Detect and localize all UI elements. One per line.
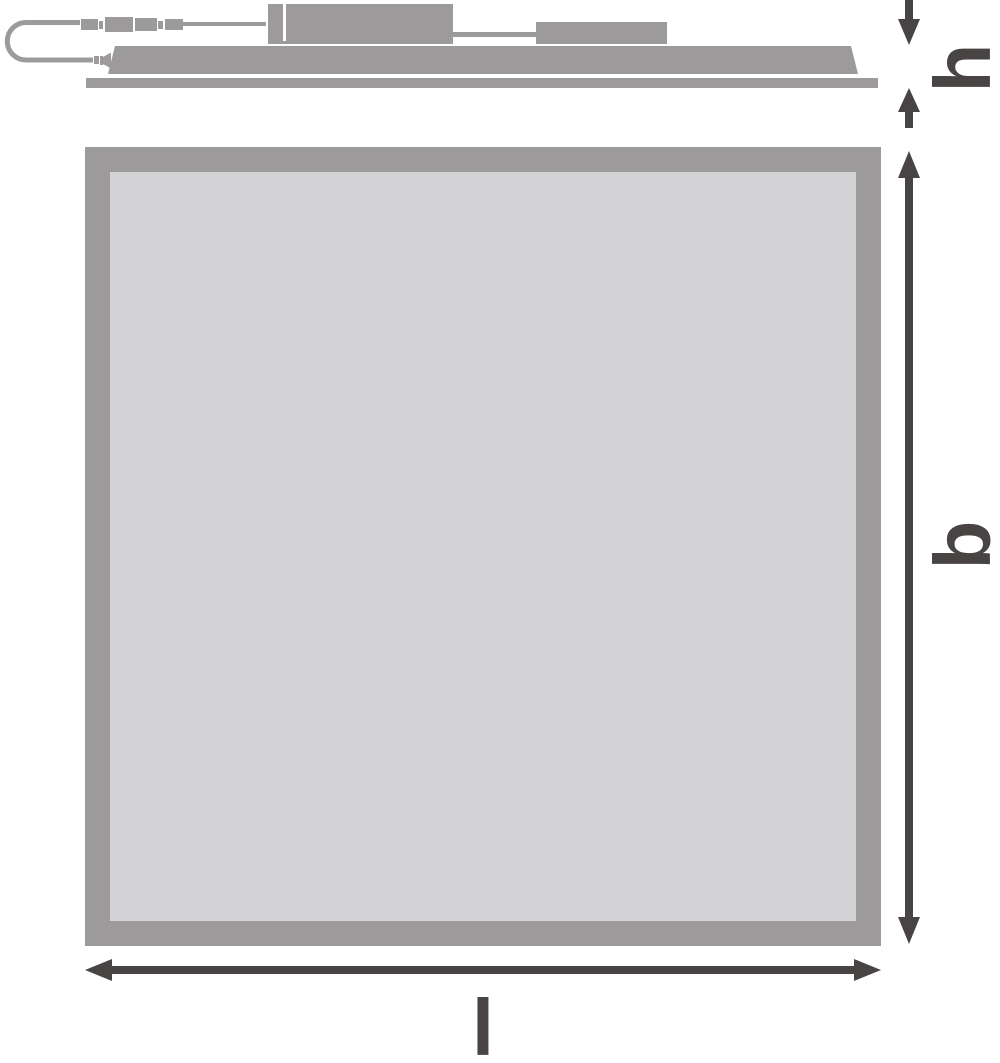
cable-connector-segment [99, 21, 103, 29]
panel-base-plate [86, 78, 878, 88]
width-arrow-shaft [905, 177, 913, 918]
length-arrowhead-left-icon [85, 959, 112, 981]
height-arrowhead-down-icon [898, 19, 920, 45]
driver-wire [183, 22, 266, 27]
height-arrow-shaft-top [905, 0, 913, 20]
height-arrow-shaft-bottom [905, 111, 913, 128]
driver-box-notch [283, 4, 286, 41]
width-arrowhead-down-icon [898, 917, 920, 944]
length-arrow-shaft [111, 966, 855, 974]
panel-plug-segment [94, 56, 99, 64]
cable-connector-segment [81, 19, 98, 30]
height-label: h [923, 44, 1000, 93]
led-panel-dimension-drawing: h b l [0, 0, 1000, 1063]
width-arrowhead-up-icon [898, 151, 920, 178]
panel-side-profile [108, 46, 858, 74]
cable-connector-segment [135, 18, 157, 32]
panel-front-view [85, 147, 881, 946]
cable-loop [0, 0, 100, 70]
height-arrowhead-up-icon [898, 88, 920, 112]
length-label: l [472, 988, 494, 1063]
panel-plug-wedge [103, 53, 111, 69]
cable-connector-segment [105, 17, 133, 32]
driver-box-large [268, 4, 453, 44]
driver-wire-2 [453, 32, 536, 37]
length-arrowhead-right-icon [854, 959, 881, 981]
width-label: b [923, 521, 1000, 570]
cable-connector-segment [165, 19, 183, 30]
driver-box-small [536, 22, 667, 44]
cable-connector-segment [158, 21, 163, 29]
panel-plug-segment [100, 56, 104, 65]
